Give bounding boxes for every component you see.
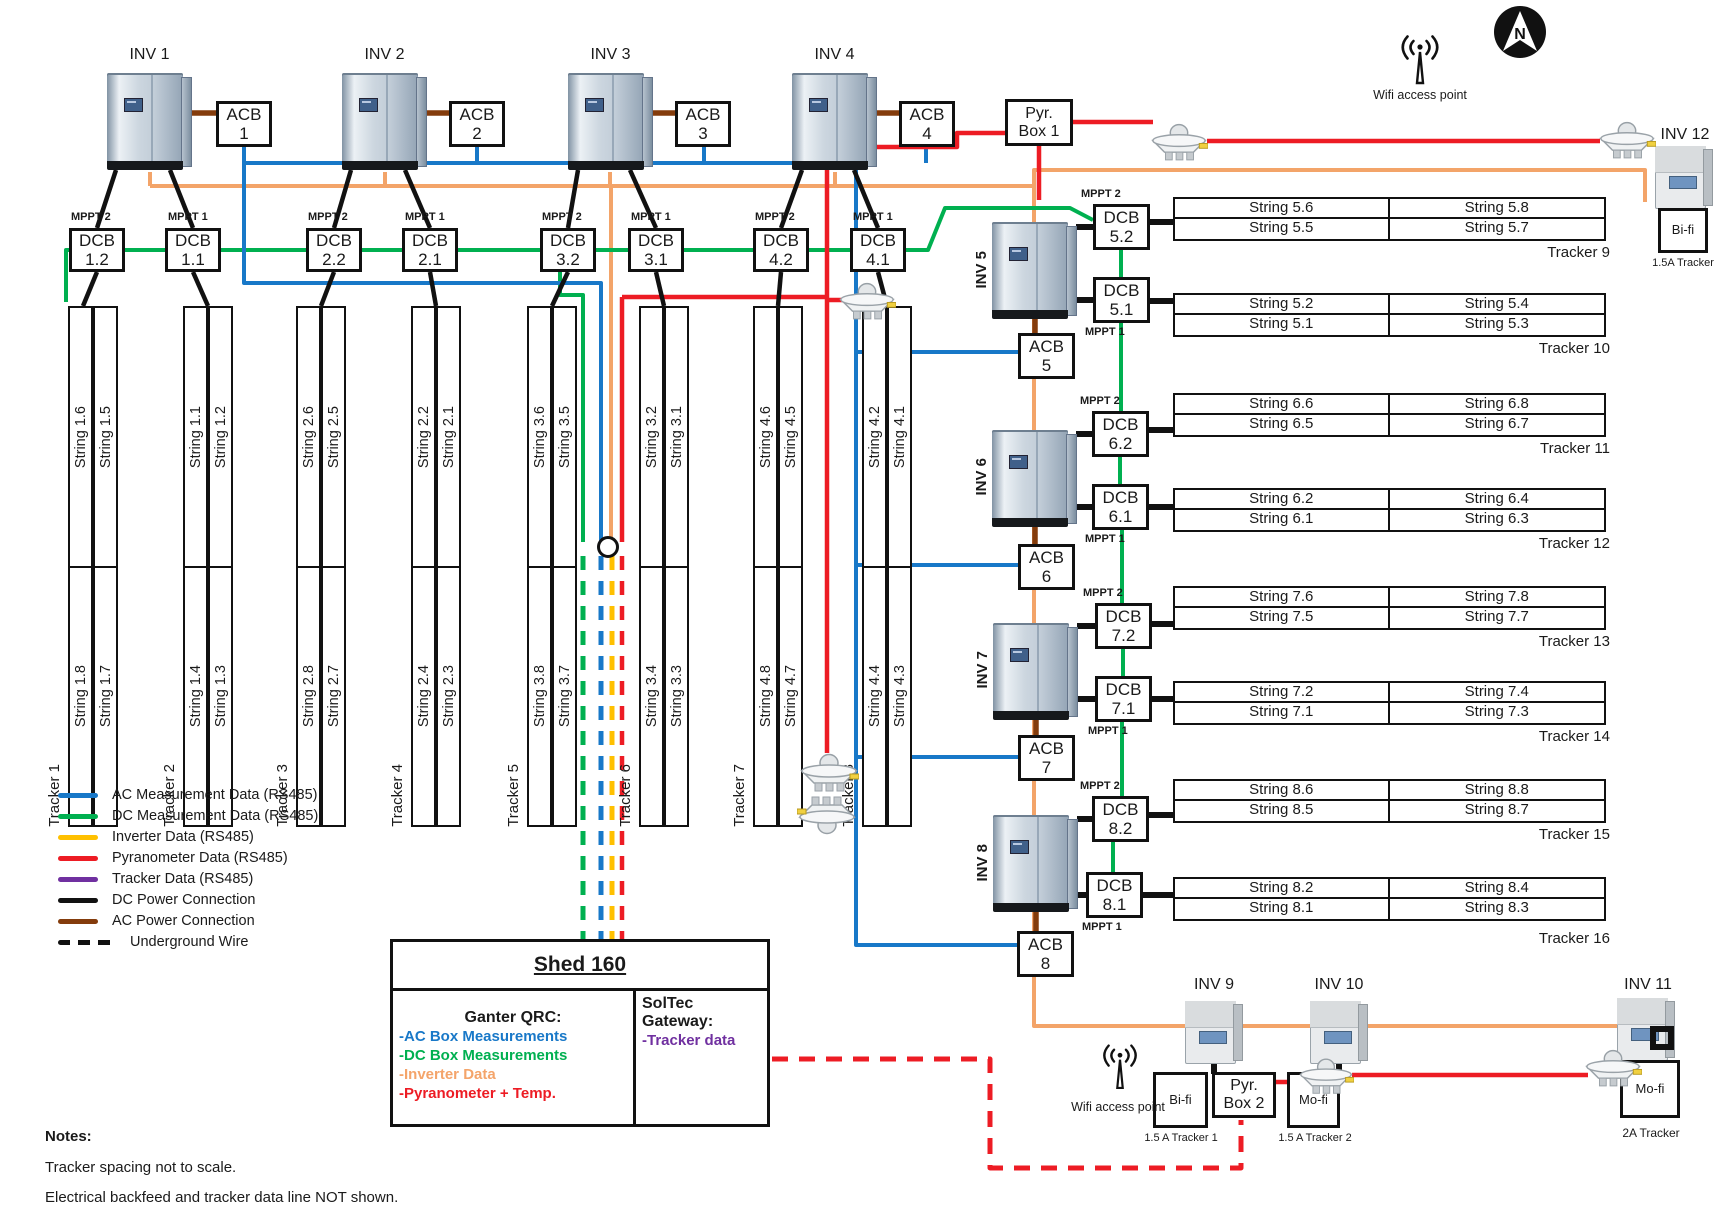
mppt1-label: MPPT 1 [1082,921,1122,933]
tracker-7-label: Tracker 7 [731,764,748,827]
tracker-16-label: Tracker 16 [1395,930,1610,947]
mppt2-label: MPPT 2 [1081,188,1121,200]
inverter-9-graphic [1185,1001,1243,1064]
mppt1-label: MPPT 1 [853,211,893,223]
pyranometer-icon [1584,1046,1642,1091]
acb-8-box: ACB8 [1017,931,1074,977]
dcb-1-2-box: DCB1.2 [69,228,125,272]
mppt1-label: MPPT 1 [405,211,445,223]
legend-swatch [58,877,98,882]
mppt2-label: MPPT 2 [542,211,582,223]
tracker-3: String 2.6String 2.8 String 2.5String 2.… [296,306,346,827]
legend-swatch [58,898,98,903]
tracker-9-label: Tracker 9 [1395,244,1610,261]
ganter-qrc-title: Ganter QRC: [399,1009,627,1027]
tracker-16-table: String 8.2String 8.4 String 8.1String 8.… [1173,877,1606,921]
mppt1-label: MPPT 1 [1085,326,1125,338]
mppt2-label: MPPT 2 [308,211,348,223]
inverter-7-graphic [993,621,1078,720]
tracker-10-label: Tracker 10 [1395,340,1610,357]
dcb-7-2-box: DCB7.2 [1095,603,1152,649]
legend-swatch [58,856,98,861]
inverter-screen [124,98,143,112]
north-compass-icon: N [1493,5,1547,59]
pyranometer-icon [1150,120,1208,165]
inverter-6-graphic [992,428,1077,527]
inv3-label: INV 3 [568,46,653,64]
ganter-item: -Pyranometer + Temp. [399,1084,627,1103]
inverter-5-graphic [992,220,1077,319]
inverter-screen [1010,648,1029,662]
tracker-5: String 3.6String 3.8 String 3.5String 3.… [527,306,577,827]
tracker-14-table: String 7.2String 7.4 String 7.1String 7.… [1173,681,1606,725]
inv8-label: INV 8 [972,814,992,911]
dcb-2-1-box: DCB2.1 [402,228,458,272]
legend-swatch [58,793,98,798]
acb-6-box: ACB6 [1018,544,1075,590]
wifi-access-point-label: Wifi access point [1342,88,1498,102]
inverter-12-graphic [1655,146,1713,209]
inverter-screen [1669,176,1697,189]
pyranometer-icon [1298,1055,1354,1098]
tracker-capacity-label: 1.5A Tracker [1645,257,1721,269]
dcb-8-2-box: DCB8.2 [1092,796,1149,842]
ganter-item: -Inverter Data [399,1065,627,1084]
inverter-screen [359,98,378,112]
tracker-15-label: Tracker 15 [1395,826,1610,843]
legend-underground-wire: Underground Wire [58,933,248,951]
tracker-13-label: Tracker 13 [1395,633,1610,650]
dcb-2-2-box: DCB2.2 [306,228,362,272]
acb-4-box: ACB4 [899,101,955,147]
svg-text:N: N [1514,26,1526,43]
wifi-access-point-icon [1398,34,1442,86]
inv11-connector [1650,1026,1674,1050]
inv11-label: INV 11 [1612,976,1684,994]
inverter-8-graphic [993,813,1078,912]
mppt1-label: MPPT 1 [168,211,208,223]
wifi-access-point-icon [1100,1042,1140,1092]
solar-plant-wiring-diagram: INV 1 INV 2 INV 3 INV 4 ACB1 ACB2 ACB3 A… [0,0,1729,1222]
inv10-label: INV 10 [1303,976,1375,994]
legend-tracker-data: Tracker Data (RS485) [58,870,253,888]
inverter-screen [1199,1031,1227,1044]
tracker-12-label: Tracker 12 [1395,535,1610,552]
shed-160: Shed 160 Ganter QRC: -AC Box Measurement… [390,939,770,1127]
dcb-5-2-box: DCB5.2 [1093,204,1150,250]
soltec-gateway-panel: SolTec Gateway: -Tracker data [636,991,767,1124]
tracker-4: String 2.2String 2.4 String 2.1String 2.… [411,306,461,827]
pyr-box-1: Pyr.Box 1 [1005,99,1073,146]
pyr-box-2: Pyr.Box 2 [1212,1072,1276,1118]
legend-swatch [58,919,98,924]
mppt2-label: MPPT 2 [71,211,111,223]
tracker-13-table: String 7.6String 7.8 String 7.5String 7.… [1173,586,1606,630]
inverter-2-graphic [342,71,427,170]
dcb-8-1-box: DCB8.1 [1086,872,1143,918]
tracker-12-table: String 6.2String 6.4 String 6.1String 6.… [1173,488,1606,532]
acb-3-box: ACB3 [675,101,731,147]
tracker-11-label: Tracker 11 [1395,440,1610,457]
inv1-label: INV 1 [107,46,192,64]
tracker-5-label: Tracker 5 [505,764,522,827]
ganter-item: -AC Box Measurements [399,1027,627,1046]
inv4-label: INV 4 [792,46,877,64]
note-line: Tracker spacing not to scale. [45,1159,398,1176]
inverter-screen [1010,840,1029,854]
legend-ac-power: AC Power Connection [58,912,255,930]
tracker-15-table: String 8.6String 8.8 String 8.5String 8.… [1173,779,1606,823]
mppt1-label: MPPT 1 [1085,533,1125,545]
dcb-6-2-box: DCB6.2 [1092,411,1149,457]
ganter-item: -DC Box Measurements [399,1046,627,1065]
mppt1-label: MPPT 1 [631,211,671,223]
dcb-3-1-box: DCB3.1 [628,228,684,272]
note-line: Electrical backfeed and tracker data lin… [45,1189,398,1206]
acb-5-box: ACB5 [1018,333,1075,379]
soltec-item: -Tracker data [642,1031,761,1050]
notes: Notes: Tracker spacing not to scale. Ele… [45,1128,398,1219]
inverter-screen [1009,247,1028,261]
tracker-1: String 1.6String 1.8 String 1.5String 1.… [68,306,118,827]
mppt2-label: MPPT 2 [1083,587,1123,599]
ganter-qrc-panel: Ganter QRC: -AC Box Measurements -DC Box… [393,991,636,1124]
dcb-6-1-box: DCB6.1 [1092,484,1149,530]
inverter-1-graphic [107,71,192,170]
soltec-gateway-title: SolTec Gateway: [642,995,761,1031]
inv9-label: INV 9 [1180,976,1248,994]
legend-swatch [58,814,98,819]
tracker-7: String 4.6String 4.8 String 4.5String 4.… [753,306,803,827]
tracker-8: String 4.2String 4.4 String 4.1String 4.… [862,306,912,827]
inv7-label: INV 7 [972,622,992,718]
wifi-access-point-label: Wifi access point [1040,1100,1196,1114]
bifi-box-inv12: Bi-fi [1658,208,1708,253]
pyranometer-icon [838,279,896,324]
legend-pyranometer-data: Pyranometer Data (RS485) [58,849,288,867]
inverter-3-graphic [568,71,653,170]
tracker-4-label: Tracker 4 [389,764,406,827]
tracker-capacity-label: 1.5 A Tracker 2 [1272,1132,1358,1144]
junction-node [599,538,618,557]
legend-swatch [58,940,116,945]
tracker-6-label: Tracker 6 [617,764,634,827]
legend-inverter-data: Inverter Data (RS485) [58,828,254,846]
inv2-label: INV 2 [342,46,427,64]
tracker-capacity-label: 1.5 A Tracker 1 [1138,1132,1224,1144]
acb-2-box: ACB2 [449,101,505,147]
tracker-11-table: String 6.6String 6.8 String 6.5String 6.… [1173,393,1606,437]
tracker-2: String 1.1String 1.4 String 1.2String 1.… [183,306,233,827]
mppt1-label: MPPT 1 [1088,725,1128,737]
dcb-4-2-box: DCB4.2 [753,228,809,272]
inv6-label: INV 6 [971,429,991,525]
tracker-9-table: String 5.6String 5.8 String 5.5String 5.… [1173,197,1606,241]
tracker-6: String 3.2String 3.4 String 3.1String 3.… [639,306,689,827]
legend-ac-measurement: AC Measurement Data (RS485) [58,786,318,804]
shed-title: Shed 160 [393,942,767,991]
dcb-5-1-box: DCB5.1 [1093,277,1150,323]
dcb-7-1-box: DCB7.1 [1095,676,1152,722]
notes-title: Notes: [45,1128,398,1145]
inverter-screen [1009,455,1028,469]
legend-dc-measurement: DC Measurement Data (RS485) [58,807,318,825]
albedometer-icon [795,792,859,838]
dcb-4-1-box: DCB4.1 [850,228,906,272]
legend-swatch [58,835,98,840]
tracker-capacity-label: 2A Tracker [1615,1126,1687,1140]
pyranometer-icon [1598,118,1656,163]
inverter-screen [809,98,828,112]
dcb-3-2-box: DCB3.2 [540,228,596,272]
inverter-4-graphic [792,71,877,170]
tracker-14-label: Tracker 14 [1395,728,1610,745]
mppt2-label: MPPT 2 [1080,780,1120,792]
mppt2-label: MPPT 2 [1080,395,1120,407]
acb-7-box: ACB7 [1018,735,1075,781]
acb-1-box: ACB1 [216,101,272,147]
inverter-screen [1324,1031,1352,1044]
inv5-label: INV 5 [971,221,991,318]
inv12-label: INV 12 [1650,126,1720,144]
legend-dc-power: DC Power Connection [58,891,255,909]
tracker-10-table: String 5.2String 5.4 String 5.1String 5.… [1173,293,1606,337]
dcb-1-1-box: DCB1.1 [165,228,221,272]
pyranometer-icon [797,750,861,796]
mppt2-label: MPPT 2 [755,211,795,223]
inverter-screen [585,98,604,112]
